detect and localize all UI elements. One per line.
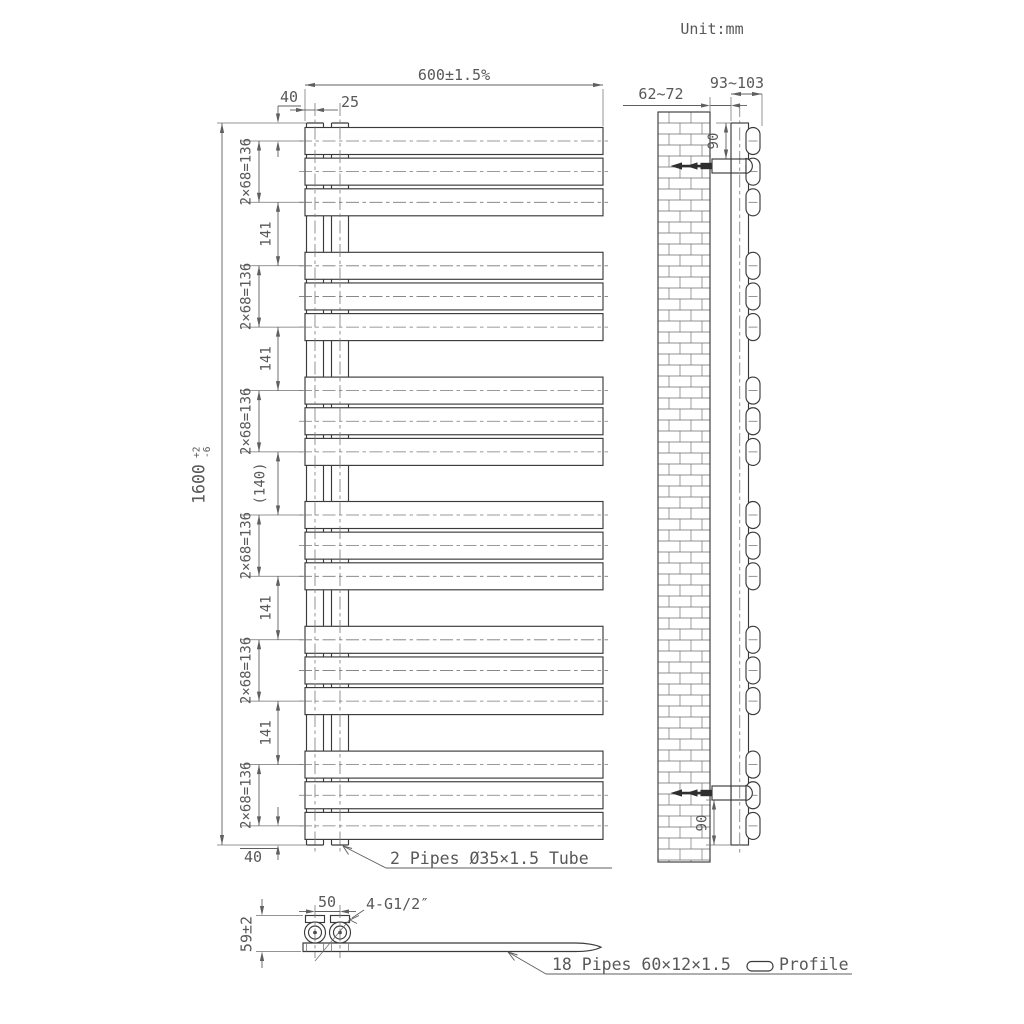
svg-text:1600: 1600 — [190, 464, 209, 504]
pipes-note-prefix: 18 Pipes 60×12×1.5 — [552, 955, 731, 974]
svg-text:2×68=136: 2×68=136 — [239, 388, 255, 455]
collector-note-text: 2 Pipes Ø35×1.5 Tube — [390, 849, 589, 868]
svg-text:2×68=136: 2×68=136 — [239, 762, 255, 829]
pipes-note: 18 Pipes 60×12×1.5 Profile — [508, 952, 852, 974]
technical-drawing: 9090 62~72 93~103 2×68=1362×68=1362×68=1… — [0, 0, 1024, 1024]
svg-text:141: 141 — [259, 595, 275, 620]
collector-note: 2 Pipes Ø35×1.5 Tube — [343, 846, 612, 868]
bracket-dimensions: 9090 — [695, 123, 732, 845]
profile-bar — [303, 943, 601, 952]
svg-text:141: 141 — [259, 720, 275, 745]
dim-wall-gap: 62~72 — [638, 85, 683, 103]
thread-label: 4-G1/2″ — [366, 895, 429, 913]
front-view: 2×68=1362×68=1362×68=1362×68=1362×68=136… — [190, 66, 613, 868]
side-view-dimensions: 62~72 93~103 — [623, 74, 764, 126]
dim-depth: 59±2 — [238, 899, 304, 968]
dim-top-end: 40 — [280, 88, 298, 106]
front-view-collector-tubes — [307, 123, 349, 845]
svg-text:90: 90 — [706, 133, 722, 150]
bottom-view: 50 4-G1/2″ 59±2 18 Pipes 60×12×1.5 Pr — [238, 893, 853, 974]
svg-text:2×68=136: 2×68=136 — [239, 138, 255, 205]
svg-text:(140): (140) — [253, 462, 269, 504]
svg-text:141: 141 — [259, 346, 275, 371]
brick-wall-hatch — [658, 112, 710, 862]
dim-wall-to-pipe: 93~103 — [710, 74, 764, 92]
dim-connection-spacing: 50 — [299, 893, 356, 914]
svg-text:2×68=136: 2×68=136 — [239, 637, 255, 704]
svg-text:59±2: 59±2 — [238, 916, 256, 952]
svg-text:90: 90 — [695, 815, 711, 832]
left-dimension-chain: 2×68=1362×68=1362×68=1362×68=1362×68=136… — [239, 138, 281, 829]
pipes-note-suffix: Profile — [779, 955, 849, 974]
svg-text:+2: +2 — [192, 447, 203, 458]
svg-text:141: 141 — [259, 221, 275, 246]
svg-text:2×68=136: 2×68=136 — [239, 512, 255, 579]
dim-edge-to-tube: 25 — [341, 93, 359, 111]
front-view-pipes — [305, 128, 603, 840]
obround-profile-glyph — [747, 962, 773, 972]
dim-bottom-end: 40 — [244, 848, 262, 866]
side-view: 9090 62~72 93~103 — [623, 74, 764, 862]
svg-text:2×68=136: 2×68=136 — [239, 263, 255, 330]
unit-label: Unit:mm — [680, 20, 743, 38]
svg-text:50: 50 — [318, 893, 336, 911]
dim-overall-height: 1600 +2 -6 — [190, 446, 214, 504]
svg-text:-6: -6 — [202, 446, 213, 458]
dim-width: 600±1.5% — [418, 66, 490, 84]
